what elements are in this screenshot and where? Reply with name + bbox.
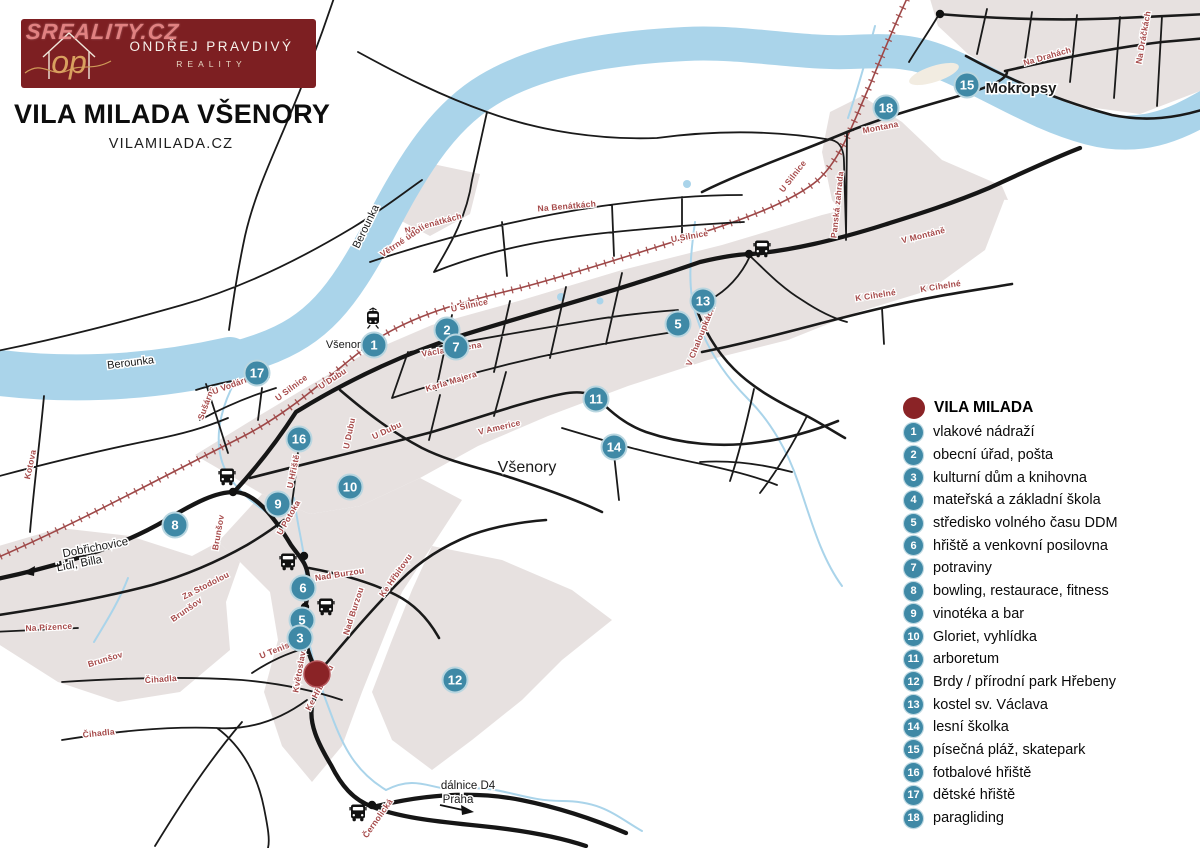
- legend-number-badge: 5: [904, 514, 923, 533]
- svg-text:3: 3: [296, 631, 303, 646]
- legend-number-badge: 8: [904, 582, 923, 601]
- legend-label: fotbalové hřiště: [933, 765, 1031, 781]
- legend-label: kostel sv. Václava: [933, 697, 1048, 713]
- legend-label: mateřská a základní škola: [933, 492, 1101, 508]
- legend-number-badge: 6: [904, 536, 923, 555]
- svg-text:12: 12: [448, 673, 462, 688]
- legend-number-badge: 12: [904, 672, 923, 691]
- svg-text:5: 5: [674, 317, 681, 332]
- legend-item-9: 9vinotéka a bar: [903, 603, 1118, 626]
- legend-item-10: 10Gloriet, vyhlídka: [903, 625, 1118, 648]
- legend-title: VILA MILADA: [934, 399, 1033, 417]
- map-marker-10: 10: [338, 475, 363, 500]
- map-marker-14: 14: [602, 435, 627, 460]
- legend-item-12: 12Brdy / přírodní park Hřebeny: [903, 671, 1118, 694]
- map-marker-3: 3: [288, 626, 313, 651]
- map-marker-9: 9: [266, 492, 291, 517]
- svg-text:9: 9: [274, 497, 281, 512]
- svg-text:18: 18: [879, 101, 893, 116]
- legend-item-16: 16fotbalové hřiště: [903, 761, 1118, 784]
- legend-number-badge: 15: [904, 740, 923, 759]
- vila-milada-map-dot: [304, 661, 330, 687]
- map-marker-16: 16: [287, 427, 312, 452]
- legend-item-1: 1vlakové nádraží: [903, 421, 1118, 444]
- junction-dot: [936, 10, 944, 18]
- place-label: Všenory: [498, 459, 557, 476]
- logo-tagline: REALITY: [117, 59, 306, 69]
- legend-item-17: 17dětské hřiště: [903, 784, 1118, 807]
- legend-label: hřiště a venkovní posilovna: [933, 538, 1108, 554]
- legend-item-2: 2obecní úřad, pošta: [903, 444, 1118, 467]
- legend: VILA MILADA 1vlakové nádraží2obecní úřad…: [903, 395, 1118, 829]
- street-label: Čihadla: [144, 672, 177, 685]
- legend-label: kulturní dům a knihovna: [933, 470, 1087, 486]
- legend-item-14: 14lesní školka: [903, 716, 1118, 739]
- svg-text:7: 7: [452, 340, 459, 355]
- bus-icon: [349, 805, 366, 822]
- map-poster: U SilniceU SilniceU SilniceU SilniceNa B…: [0, 0, 1200, 848]
- street-label: U Silnice: [670, 228, 709, 244]
- map-marker-15: 15: [955, 73, 980, 98]
- map-marker-5: 5: [666, 312, 691, 337]
- legend-item-3: 3kulturní dům a knihovna: [903, 466, 1118, 489]
- legend-item-4: 4mateřská a základní škola: [903, 489, 1118, 512]
- legend-number-badge: 2: [904, 446, 923, 465]
- legend-label: středisko volného času DDM: [933, 515, 1118, 531]
- legend-number-badge: 4: [904, 491, 923, 510]
- map-marker-11: 11: [584, 387, 609, 412]
- svg-text:6: 6: [299, 581, 306, 596]
- legend-label: bowling, restaurace, fitness: [933, 583, 1109, 599]
- svg-text:10: 10: [343, 480, 357, 495]
- legend-item-18: 18paragliding: [903, 807, 1118, 830]
- legend-label: Brdy / přírodní park Hřebeny: [933, 674, 1116, 690]
- legend-label: arboretum: [933, 651, 999, 667]
- map-marker-18: 18: [874, 96, 899, 121]
- legend-label: potraviny: [933, 560, 992, 576]
- place-label: Mokropsy: [986, 80, 1058, 97]
- legend-number-badge: 14: [904, 718, 923, 737]
- map-marker-17: 17: [245, 361, 270, 386]
- junction-dot: [745, 250, 753, 258]
- train-icon: [367, 308, 379, 329]
- legend-number-badge: 18: [904, 809, 923, 828]
- legend-number-badge: 1: [904, 423, 923, 442]
- legend-number-badge: 7: [904, 559, 923, 578]
- svg-text:17: 17: [250, 366, 264, 381]
- svg-text:11: 11: [589, 392, 603, 407]
- street-label: U Silnice: [777, 158, 808, 194]
- legend-number-badge: 9: [904, 604, 923, 623]
- svg-text:8: 8: [171, 518, 178, 533]
- map-marker-12: 12: [443, 668, 468, 693]
- legend-item-8: 8bowling, restaurace, fitness: [903, 580, 1118, 603]
- legend-items: 1vlakové nádraží2obecní úřad, pošta3kult…: [903, 421, 1118, 829]
- svg-text:15: 15: [960, 78, 974, 93]
- legend-item-7: 7potraviny: [903, 557, 1118, 580]
- legend-number-badge: 10: [904, 627, 923, 646]
- legend-number-badge: 13: [904, 695, 923, 714]
- street-label: Čihadla: [82, 725, 115, 739]
- legend-item-15: 15písečná pláž, skatepark: [903, 739, 1118, 762]
- map-marker-7: 7: [444, 335, 469, 360]
- logo-monogram: op: [51, 44, 87, 80]
- vila-milada-dot: [903, 397, 925, 419]
- legend-label: lesní školka: [933, 719, 1009, 735]
- legend-number-badge: 11: [904, 650, 923, 669]
- map-marker-6: 6: [291, 576, 316, 601]
- svg-text:13: 13: [696, 294, 710, 309]
- legend-item-11: 11arboretum: [903, 648, 1118, 671]
- legend-item-5: 5středisko volného času DDM: [903, 512, 1118, 535]
- svg-text:1: 1: [370, 338, 377, 353]
- legend-label: písečná pláž, skatepark: [933, 742, 1085, 758]
- svg-text:16: 16: [292, 432, 306, 447]
- legend-label: Gloriet, vyhlídka: [933, 629, 1037, 645]
- map-marker-1: 1: [362, 333, 387, 358]
- map-marker-8: 8: [163, 513, 188, 538]
- legend-number-badge: 3: [904, 468, 923, 487]
- legend-item-6: 6hřiště a venkovní posilovna: [903, 534, 1118, 557]
- legend-label: vinotéka a bar: [933, 606, 1024, 622]
- junction-dot: [300, 552, 308, 560]
- junction-dot: [368, 801, 376, 809]
- header: VILA MILADA VŠENORY VILAMILADA.CZ: [14, 99, 328, 152]
- svg-text:14: 14: [607, 440, 622, 455]
- legend-number-badge: 16: [904, 763, 923, 782]
- map-marker-13: 13: [691, 289, 716, 314]
- place-label: dálnice D4: [441, 780, 496, 792]
- junction-dot: [229, 488, 237, 496]
- legend-label: dětské hřiště: [933, 787, 1015, 803]
- vila-milada-location-dot: [304, 661, 330, 687]
- legend-number-badge: 17: [904, 786, 923, 805]
- legend-label: vlakové nádraží: [933, 424, 1035, 440]
- page-subtitle: VILAMILADA.CZ: [14, 136, 328, 152]
- place-label: Praha: [443, 794, 474, 806]
- legend-label: obecní úřad, pošta: [933, 447, 1053, 463]
- page-title: VILA MILADA VŠENORY: [14, 99, 328, 130]
- legend-title-row: VILA MILADA: [903, 395, 1118, 421]
- legend-item-13: 13kostel sv. Václava: [903, 693, 1118, 716]
- legend-label: paragliding: [933, 810, 1004, 826]
- sreality-watermark: SREALITY.CZ: [25, 19, 180, 45]
- direction-arrow-d4-praha: [440, 805, 474, 815]
